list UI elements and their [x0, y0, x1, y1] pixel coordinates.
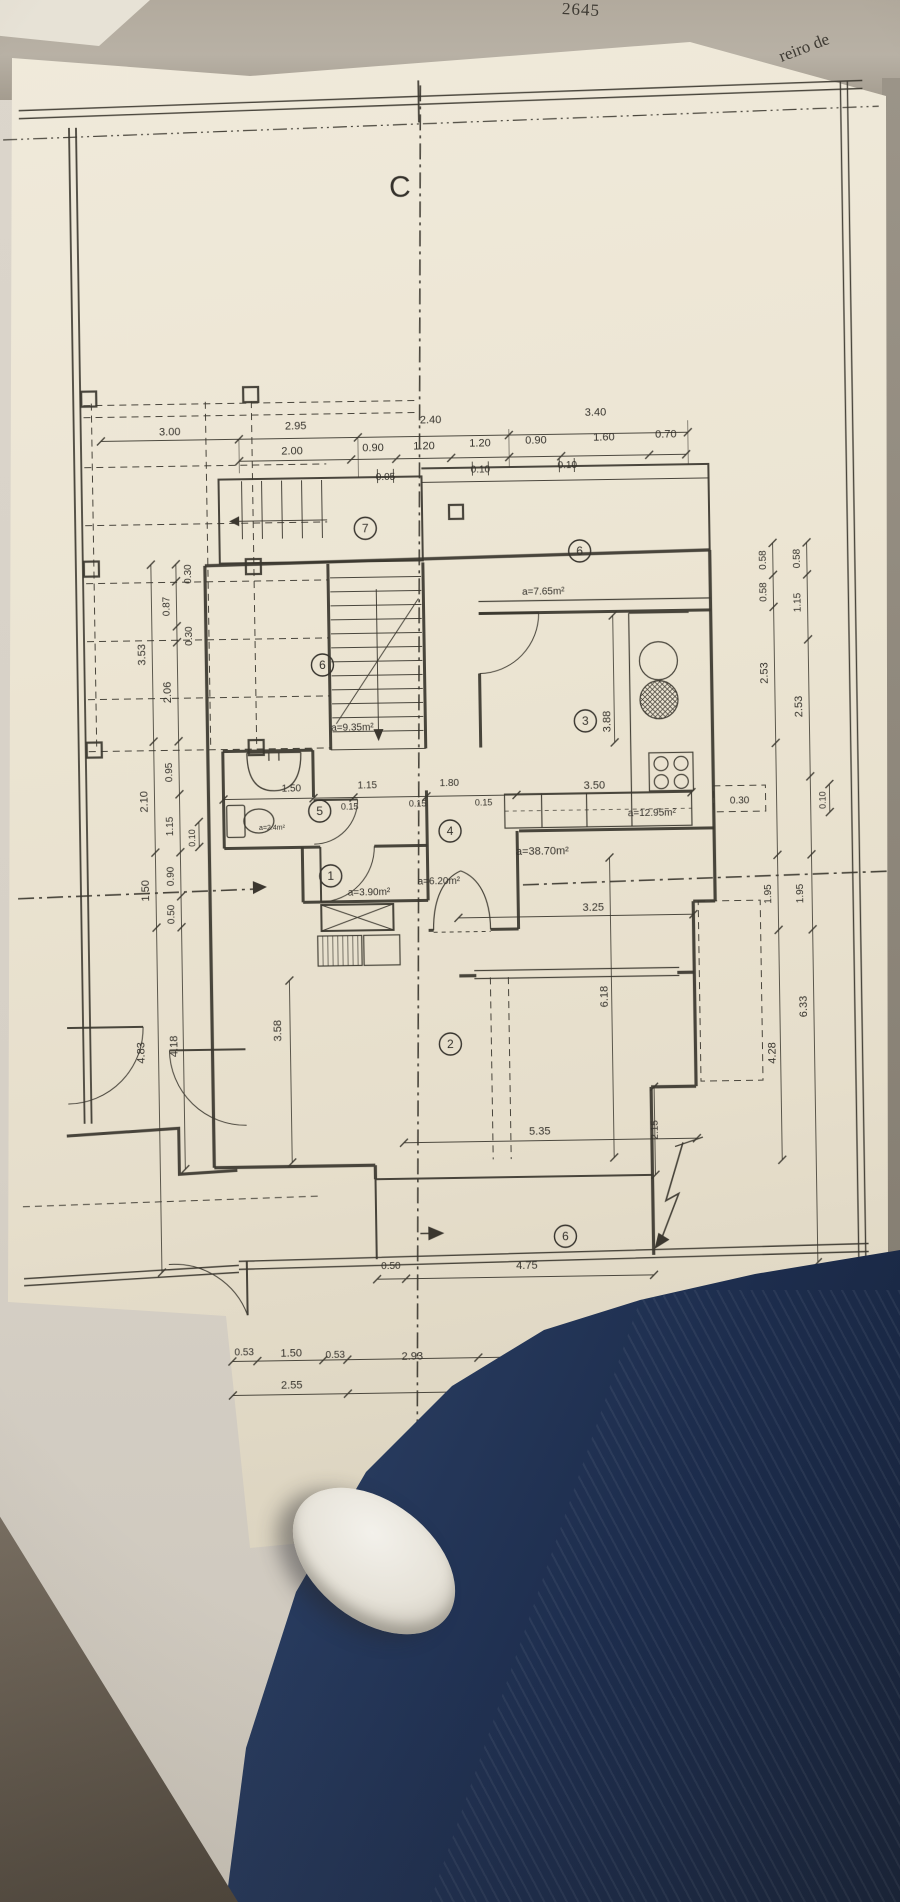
dimension-label: 0.50 — [381, 1261, 401, 1272]
dimension-label: 1.15 — [165, 816, 176, 836]
dimension-label: 0.70 — [655, 428, 677, 440]
section-label-c: C — [389, 171, 411, 204]
dimension-label: 3.50 — [584, 780, 606, 792]
room-number: 7 — [354, 517, 376, 539]
dimension-label: 0.30 — [730, 795, 750, 806]
dimension-label: 0.58 — [758, 582, 769, 602]
room-number: 1 — [320, 865, 342, 887]
toilet-tank-icon — [227, 805, 246, 837]
room-number-text: 5 — [316, 804, 323, 818]
dimension-label: 2.40 — [420, 414, 442, 426]
stairs — [330, 576, 424, 741]
dimension-label: 0.50 — [166, 904, 177, 924]
dimension-label: 0.15 — [341, 801, 359, 811]
dimension-label: 0.10 — [187, 829, 197, 847]
dimension-label: 1.50 — [280, 1347, 302, 1359]
dimension-label: 0.53 — [234, 1347, 254, 1358]
interior-walls — [220, 558, 716, 934]
photo-of-floor-plan: 2645 reiro de — [0, 0, 900, 1902]
area-label: a=6.20m² — [418, 876, 461, 888]
dimension-label: 0.10 — [817, 791, 827, 809]
dimension-label: 0.10 — [558, 460, 578, 471]
room-number-text: 1 — [327, 869, 334, 883]
dimension-label: 0.58 — [758, 550, 769, 570]
dimension-label: 2.95 — [285, 420, 307, 432]
dimension-label: 3.00 — [159, 426, 181, 438]
dimension-label: 0.10 — [471, 464, 491, 475]
dimension-chain — [235, 450, 690, 465]
dimension-label: 2.55 — [281, 1379, 303, 1391]
room-number-text: 6 — [576, 544, 583, 558]
dimension-label: 3.40 — [585, 407, 607, 419]
area-label: a=9.35m² — [331, 722, 374, 734]
dimension-label: 1.60 — [593, 431, 615, 443]
room-number: 5 — [309, 800, 331, 822]
dimension-label: 0.90 — [362, 442, 384, 454]
dimension-label: 2.00 — [281, 445, 303, 457]
dimension-label: 1.15 — [792, 592, 803, 612]
dimension-label: 1.15 — [358, 780, 378, 791]
dimension-label: 0.53 — [325, 1350, 345, 1361]
dimension-label: 2.93 — [402, 1351, 424, 1363]
dimension-label: 1.50 — [140, 880, 152, 902]
dimension-chain — [769, 539, 787, 1164]
terrace-dashed-lines — [16, 785, 771, 1207]
area-label: a=12.95m² — [628, 807, 677, 819]
doors — [61, 613, 550, 1318]
room-number-text: 3 — [582, 714, 589, 728]
dimension-chain — [147, 561, 166, 1277]
dimension-label: 4.83 — [135, 1042, 147, 1064]
dimension-label: 3.53 — [136, 644, 148, 666]
dimension-label: 0.30 — [184, 626, 195, 646]
area-label: a=2.4m² — [259, 825, 286, 832]
dimension-label: 4.75 — [516, 1260, 538, 1272]
room-number-text: 7 — [362, 521, 369, 535]
dimension-label: 0.15 — [475, 797, 493, 807]
dimension-label: 6.33 — [798, 996, 810, 1018]
dimension-label: 1.95 — [763, 884, 774, 904]
north-arrow — [653, 1137, 705, 1249]
room-number: 3 — [574, 710, 596, 732]
exterior-walls — [205, 550, 721, 1262]
dimension-label: 2.15 — [650, 1120, 661, 1140]
dimension-label: 1.20 — [469, 437, 491, 449]
dimension-label: 3.58 — [272, 1020, 284, 1042]
dimension-label: 2.53 — [758, 662, 770, 684]
room-number: 2 — [439, 1033, 461, 1055]
dimension-label: 3.25 — [582, 902, 604, 914]
room-number: 6 — [569, 540, 591, 562]
room-number: 6 — [554, 1225, 576, 1247]
steps-arrow-icon — [229, 516, 239, 526]
dimension-label: 0.87 — [161, 596, 172, 616]
room-number-text: 4 — [447, 824, 454, 838]
area-label: a=3.90m² — [348, 887, 391, 899]
dimension-label: 2.06 — [162, 682, 174, 704]
dimension-label: 0.95 — [164, 762, 175, 782]
sheet-border — [5, 73, 881, 1298]
pergola-columns — [81, 384, 467, 758]
dimension-label: 0.15 — [409, 798, 427, 808]
dimension-label: 1.80 — [439, 778, 459, 789]
dimension-label: 0.30 — [183, 564, 194, 584]
sink-basin-icon — [640, 680, 679, 719]
fireplace-closet — [317, 904, 400, 966]
dimension-label: 0.58 — [792, 548, 803, 568]
sink-icon — [639, 641, 678, 680]
property-boundary — [3, 106, 895, 1177]
dimension-label: 3.88 — [601, 711, 613, 733]
stair-direction-arrow-icon — [373, 729, 383, 741]
area-label: a=7.65m² — [522, 586, 565, 598]
dimension-label: 0.90 — [525, 434, 547, 446]
room-number-text: 6 — [562, 1229, 569, 1243]
dimension-label: 1.50 — [282, 783, 302, 794]
dimension-label: 2.53 — [793, 696, 805, 718]
dimension-label: 4.28 — [766, 1042, 778, 1064]
dimension-label: 1.20 — [413, 440, 435, 452]
area-label: a=38.70m² — [516, 845, 569, 858]
pergola-grid — [81, 384, 467, 758]
room-number: 4 — [439, 820, 461, 842]
dimension-label: 4.18 — [168, 1036, 180, 1058]
dimension-label: 0.90 — [166, 866, 177, 886]
dimension-label: 6.18 — [599, 986, 611, 1008]
dimension-label: 1.95 — [795, 883, 806, 903]
dimension-chain — [285, 976, 296, 1166]
room-number-text: 6 — [319, 658, 326, 672]
dimension-chain — [373, 1271, 658, 1283]
dimension-label: 0.05 — [376, 472, 396, 483]
dimension-label: 5.35 — [529, 1125, 551, 1137]
room-number-text: 2 — [447, 1037, 454, 1051]
dimension-label: 2.10 — [138, 791, 150, 813]
dimension-chain — [454, 910, 697, 922]
